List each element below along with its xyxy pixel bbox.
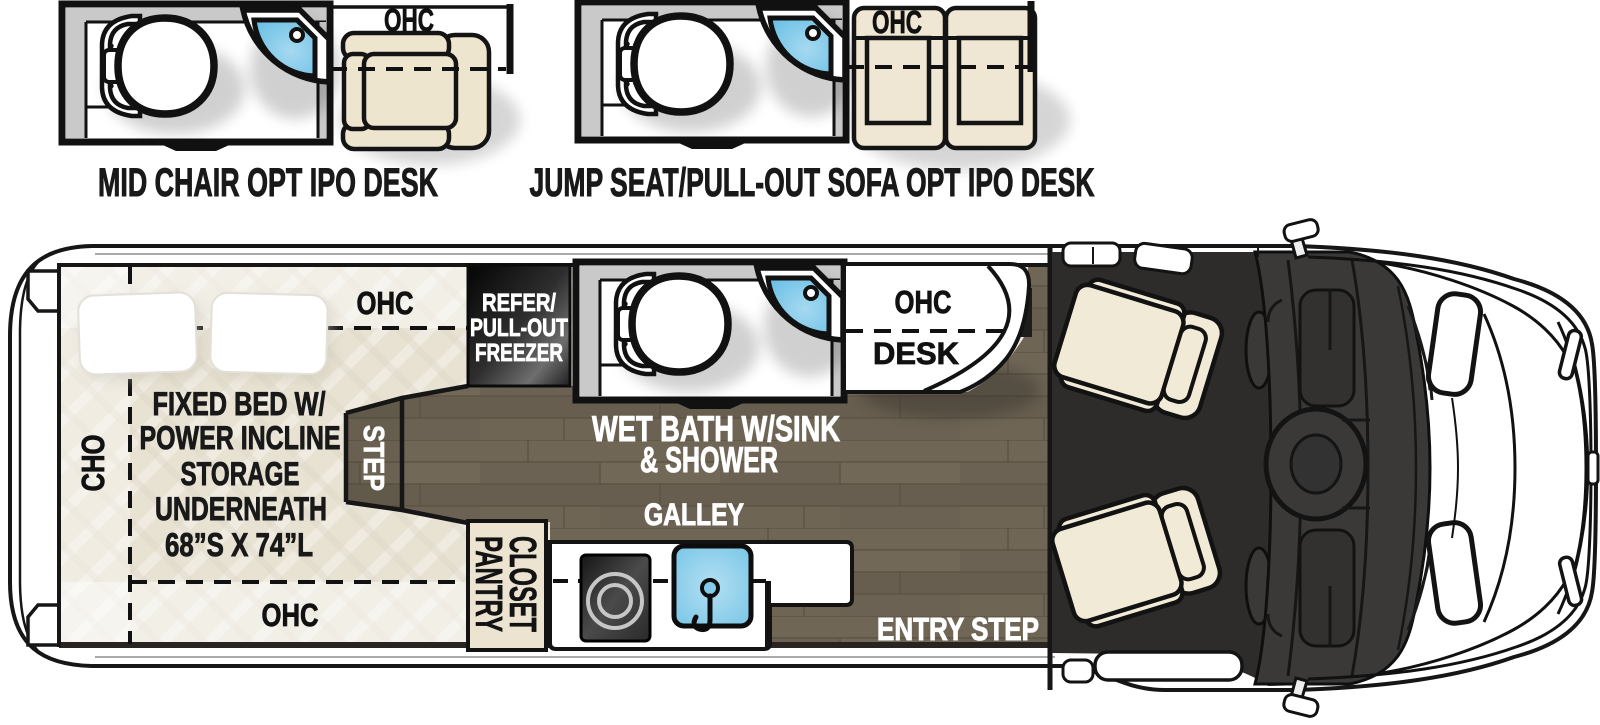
- svg-text:UNDERNEATH: UNDERNEATH: [155, 490, 327, 527]
- svg-text:& SHOWER: & SHOWER: [640, 439, 778, 480]
- svg-text:JUMP SEAT/PULL-OUT SOFA OPT IP: JUMP SEAT/PULL-OUT SOFA OPT IPO DESK: [530, 161, 1095, 205]
- svg-text:OHC: OHC: [262, 597, 319, 633]
- svg-text:PULL-OUT: PULL-OUT: [470, 314, 568, 342]
- svg-text:REFER/: REFER/: [482, 289, 556, 317]
- svg-text:PANTRY: PANTRY: [467, 536, 509, 632]
- svg-text:FIXED BED W/: FIXED BED W/: [153, 385, 326, 422]
- svg-text:OHC: OHC: [357, 285, 414, 321]
- svg-text:68”S X 74”L: 68”S X 74”L: [165, 526, 313, 563]
- svg-text:CHO: CHO: [75, 435, 111, 492]
- svg-text:ENTRY STEP: ENTRY STEP: [877, 611, 1039, 647]
- svg-text:STORAGE: STORAGE: [181, 455, 300, 492]
- svg-text:MID CHAIR OPT IPO DESK: MID CHAIR OPT IPO DESK: [98, 161, 438, 205]
- svg-text:OHC: OHC: [384, 2, 434, 38]
- svg-text:STEP: STEP: [357, 425, 389, 491]
- svg-text:GALLEY: GALLEY: [644, 497, 744, 532]
- svg-text:OHC: OHC: [895, 284, 952, 320]
- svg-text:DESK: DESK: [873, 336, 960, 371]
- svg-text:POWER INCLINE: POWER INCLINE: [140, 419, 341, 456]
- svg-text:OHC: OHC: [872, 4, 922, 40]
- svg-text:FREEZER: FREEZER: [475, 339, 563, 367]
